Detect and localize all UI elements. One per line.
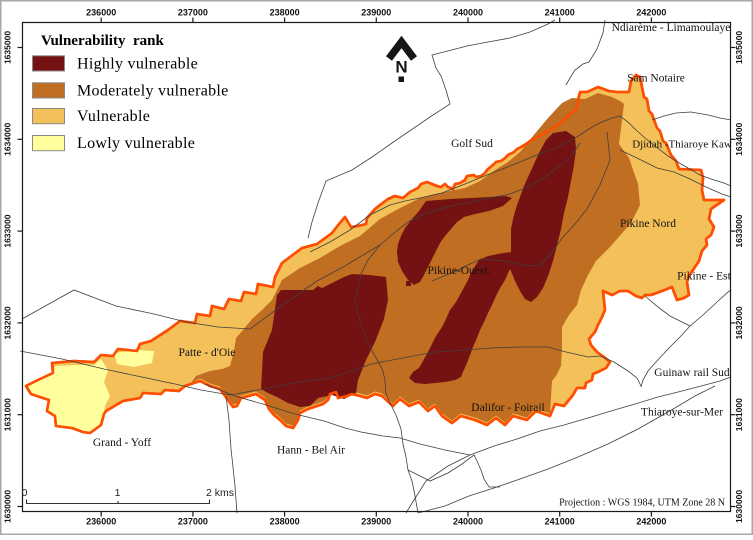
svg-text:1635000: 1635000 xyxy=(734,31,744,64)
svg-text:1632000: 1632000 xyxy=(734,306,744,339)
svg-text:2 kms: 2 kms xyxy=(206,487,234,499)
svg-text:1630000: 1630000 xyxy=(3,490,13,523)
svg-text:N: N xyxy=(395,58,407,77)
svg-text:242000: 242000 xyxy=(636,8,666,18)
svg-text:Vulnerable: Vulnerable xyxy=(77,108,150,125)
svg-text:1635000: 1635000 xyxy=(3,31,13,64)
svg-text:Djidah -Thiaroye Kaw: Djidah -Thiaroye Kaw xyxy=(632,139,732,151)
svg-text:237000: 237000 xyxy=(178,517,208,527)
svg-text:Patte - d'Oie: Patte - d'Oie xyxy=(178,347,235,359)
svg-text:Lowly vulnerable: Lowly vulnerable xyxy=(77,135,195,152)
svg-text:Vulnerability rank: Vulnerability rank xyxy=(41,33,164,49)
svg-text:240000: 240000 xyxy=(453,8,483,18)
svg-text:1633000: 1633000 xyxy=(734,214,744,247)
svg-text:0: 0 xyxy=(22,487,28,499)
svg-text:238000: 238000 xyxy=(270,8,300,18)
svg-text:1633000: 1633000 xyxy=(3,214,13,247)
svg-text:Sam Notaire: Sam Notaire xyxy=(627,73,685,85)
svg-text:1: 1 xyxy=(115,487,121,499)
svg-text:Dalifor - Foirail: Dalifor - Foirail xyxy=(471,402,544,414)
svg-text:236000: 236000 xyxy=(86,8,116,18)
svg-text:1631000: 1631000 xyxy=(3,398,13,431)
svg-text:Hann - Bel Air: Hann - Bel Air xyxy=(277,445,345,457)
svg-text:1632000: 1632000 xyxy=(3,306,13,339)
svg-text:Golf Sud: Golf Sud xyxy=(451,138,493,150)
svg-text:236000: 236000 xyxy=(86,517,116,527)
svg-text:Highly vulnerable: Highly vulnerable xyxy=(77,55,198,72)
svg-text:239000: 239000 xyxy=(361,517,391,527)
svg-text:Guinaw rail Sud: Guinaw rail Sud xyxy=(654,367,730,379)
svg-text:Projection : WGS 1984, UTM Zon: Projection : WGS 1984, UTM Zone 28 N xyxy=(559,498,725,509)
svg-text:241000: 241000 xyxy=(545,8,575,18)
svg-text:237000: 237000 xyxy=(178,8,208,18)
svg-text:241000: 241000 xyxy=(545,517,575,527)
svg-text:Pikine Nord: Pikine Nord xyxy=(620,218,676,230)
svg-text:240000: 240000 xyxy=(453,517,483,527)
svg-text:Pikine-Ouest.: Pikine-Ouest. xyxy=(428,265,491,277)
svg-text:Pikine - Est: Pikine - Est xyxy=(677,271,731,283)
svg-text:Thiaroye-sur-Mer: Thiaroye-sur-Mer xyxy=(641,407,723,419)
svg-text:239000: 239000 xyxy=(361,8,391,18)
svg-text:1631000: 1631000 xyxy=(734,398,744,431)
svg-text:Moderately vulnerable: Moderately vulnerable xyxy=(77,82,229,99)
svg-text:1634000: 1634000 xyxy=(734,122,744,155)
svg-text:Ndiarème - Limamoulaye: Ndiarème - Limamoulaye xyxy=(612,22,731,34)
svg-text:1634000: 1634000 xyxy=(3,122,13,155)
svg-text:1630000: 1630000 xyxy=(734,490,744,523)
svg-text:238000: 238000 xyxy=(270,517,300,527)
svg-text:Grand - Yoff: Grand - Yoff xyxy=(93,437,151,449)
svg-text:242000: 242000 xyxy=(636,517,666,527)
